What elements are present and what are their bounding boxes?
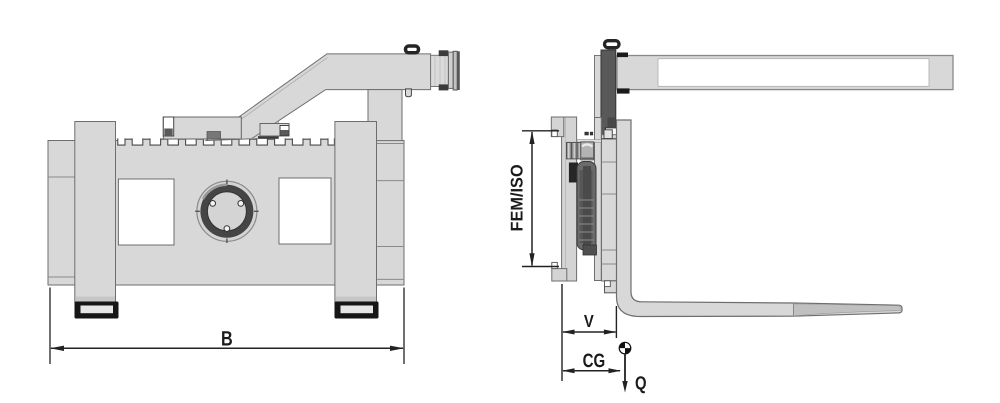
svg-text:Q: Q (635, 374, 647, 395)
svg-text:V: V (584, 311, 594, 331)
svg-text:B: B (221, 328, 233, 351)
svg-text:CG: CG (583, 351, 606, 372)
svg-text:FEM/ISO: FEM/ISO (508, 164, 527, 231)
